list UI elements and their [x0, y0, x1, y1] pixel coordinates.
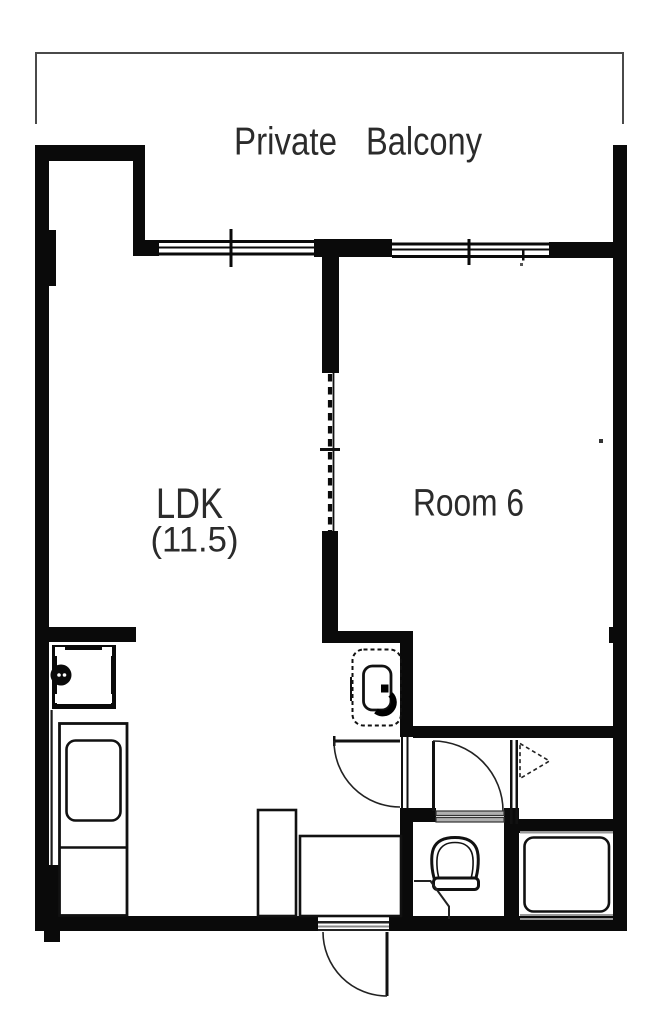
svg-text:(11.5): (11.5) [151, 521, 239, 560]
svg-text:Balcony: Balcony [366, 121, 482, 164]
svg-text:Private: Private [234, 121, 337, 164]
svg-text:Room 6: Room 6 [413, 483, 524, 525]
